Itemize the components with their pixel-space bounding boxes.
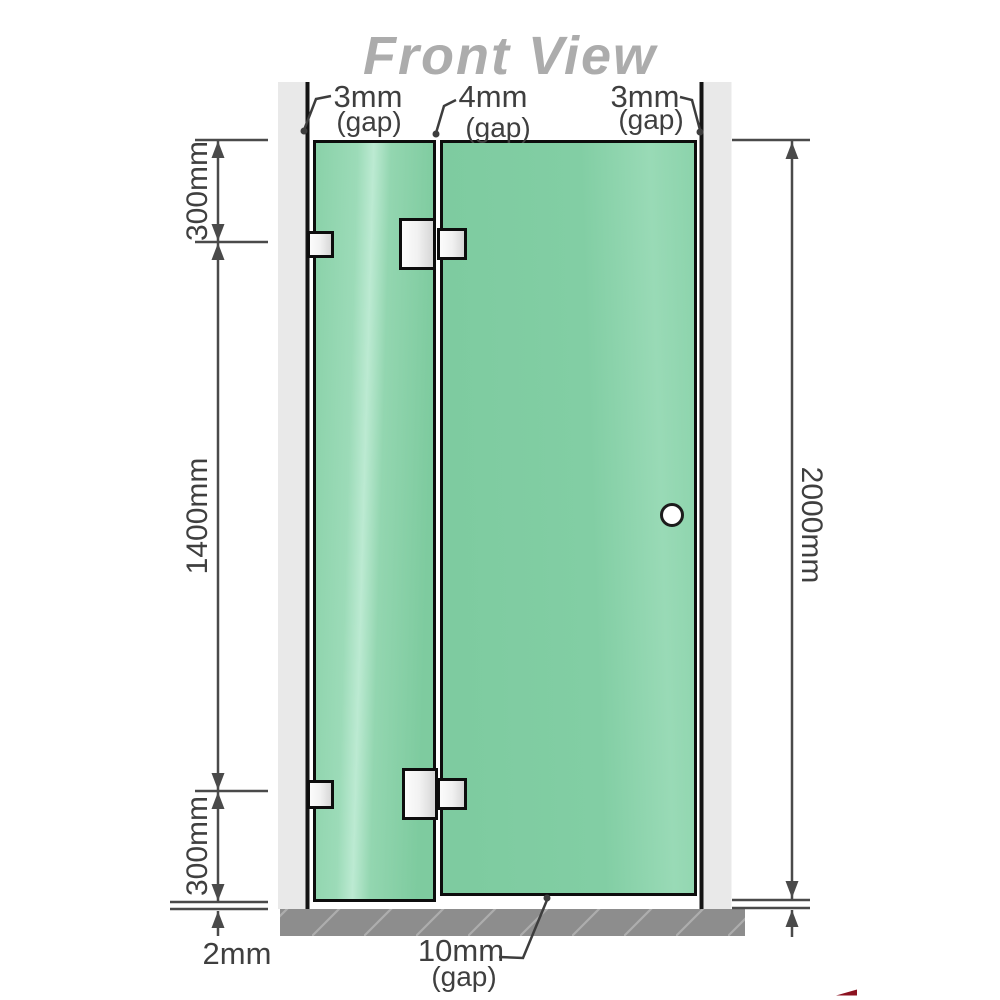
leader-dot-icon — [301, 128, 308, 135]
leader-dot-icon — [544, 895, 551, 902]
gap-label-middle-suffix: (gap) — [465, 112, 530, 143]
arrow-up-icon — [786, 910, 799, 927]
gap-label-middle-value: 4mm — [459, 79, 528, 114]
dim-label-total-2000: 2000mm — [795, 467, 828, 584]
bottom-wall-bracket — [309, 782, 333, 808]
shower-screen-drawing: Front View — [0, 0, 1000, 1000]
right-wall-channel — [704, 82, 732, 909]
door-gap-label-suffix: (gap) — [431, 961, 496, 992]
top-hinge-door-plate — [439, 230, 466, 259]
top-wall-bracket — [309, 233, 333, 257]
arrow-up-icon — [786, 142, 799, 159]
dim-label-bottom-300: 300mm — [181, 796, 214, 896]
leader-gap-middle — [436, 100, 456, 133]
floor-base — [280, 909, 745, 936]
page-title: Front View — [363, 26, 658, 86]
door-knob — [662, 505, 683, 526]
front-view-diagram: Front View — [0, 0, 1000, 1000]
bottom-hinge-door-plate — [439, 780, 466, 809]
cropped-logo-icon — [836, 990, 857, 996]
gap-label-right-suffix: (gap) — [618, 104, 683, 135]
floor-gap-label: 2mm — [203, 936, 272, 971]
gap-label-left-suffix: (gap) — [336, 106, 401, 137]
arrow-up-icon — [212, 911, 225, 928]
arrow-down-icon — [212, 773, 225, 790]
leader-dot-icon — [433, 131, 440, 138]
door-glass-panel — [442, 142, 696, 895]
arrow-down-icon — [786, 881, 799, 898]
leader-dot-icon — [697, 129, 704, 136]
left-wall-channel — [278, 82, 306, 909]
dim-label-top-300: 300mm — [181, 141, 214, 241]
arrow-up-icon — [212, 243, 225, 260]
top-hinge-fixed-plate — [401, 220, 435, 269]
floor-hatching — [280, 909, 745, 936]
right-wall-edge-line — [700, 82, 704, 909]
bottom-hinge-fixed-plate — [404, 770, 437, 819]
dim-label-middle-1400: 1400mm — [181, 458, 214, 575]
